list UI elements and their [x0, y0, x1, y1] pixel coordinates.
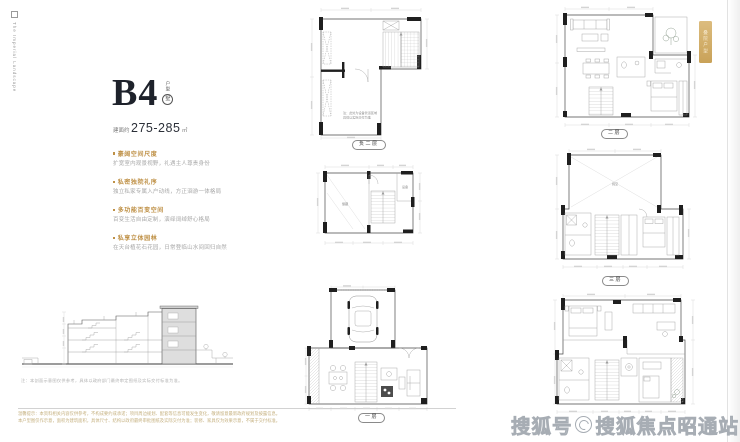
page: The Imperial Landscape B4 户型 墅 建面约 275-2… [0, 0, 740, 442]
floor-plan-level3: 挑空 [551, 147, 693, 275]
badge-text: 叠院户型 [703, 30, 709, 54]
floor-plan-level2 [551, 5, 699, 129]
closet-dashed [323, 32, 331, 116]
plan-label-level2: 二层 [601, 129, 628, 139]
corner-badge: 叠院户型 [699, 21, 712, 63]
area-value: 275-285 [131, 121, 180, 135]
dining-set [329, 365, 347, 390]
plan-note: 注：此处为设备管道区域 [343, 110, 377, 115]
floor-plan-level4 [549, 292, 697, 418]
kitchen [381, 368, 397, 397]
stairs [595, 360, 619, 400]
bed [565, 306, 601, 336]
building-section-drawing [20, 288, 235, 374]
brand-mark: The Imperial Landscape [11, 11, 18, 92]
feature-desc: 在天台植花石花园，日常登临山水间回归自然 [113, 245, 265, 252]
bathroom [565, 213, 591, 255]
unit-title: B4 户型 墅 [112, 74, 173, 112]
feature-desc: 扩宽室内观景视野，礼遇主人尊贵身份 [113, 161, 265, 168]
floor-plan-basement2: 注：此处为设备管道区域 具体以实际交付为准 [305, 5, 433, 147]
stairs [595, 215, 619, 255]
unit-area: 建面约 275-285 ㎡ [113, 121, 187, 135]
disclaimer-line: 本户型图仅作示意，面积为建筑面积，具体尺寸、结构以政府最终审批图纸及实际交付为准… [18, 418, 454, 425]
feature-item: 私享立体园林 在天台植花石花园，日常登临山水间回归自然 [113, 233, 265, 252]
feature-title: 豪阔空间尺度 [118, 149, 158, 158]
disclaimer-line: 温馨提示：本资料相关内容仅供参考，不构成要约或承诺；项目周边规划、配套等信息可能… [18, 411, 454, 418]
watermark-suffix: 搜狐焦点昭通站 [595, 410, 739, 439]
bathroom [559, 358, 589, 400]
feature-title: 多功能百变空间 [118, 205, 164, 214]
unit-side-label: 户型 [165, 81, 171, 92]
feature-list: 豪阔空间尺度 扩宽室内观景视野，礼遇主人尊贵身份 私密独院礼序 独立私家专属入户… [113, 149, 265, 262]
watermark-prefix: 搜狐号 [511, 410, 573, 439]
unit-seal-icon: 墅 [162, 94, 173, 105]
brand-text: The Imperial Landscape [12, 22, 17, 92]
bed [643, 217, 665, 247]
plan-label-basement2: 负二层 [352, 140, 386, 150]
stairs [355, 362, 377, 402]
stairs [589, 87, 613, 115]
brand-logo-icon [11, 11, 18, 18]
feature-title: 私享立体园林 [118, 233, 158, 242]
feature-desc: 独立私家专属入户动线，方正洄游一体格局 [113, 189, 265, 196]
wardrobe [633, 304, 675, 313]
kitchen [655, 59, 687, 73]
plan-label-ground: 一层 [358, 413, 385, 423]
bullet-marker [113, 209, 115, 211]
bullet-marker [113, 181, 115, 183]
feature-item: 豪阔空间尺度 扩宽室内观景视野，礼遇主人尊贵身份 [113, 149, 265, 168]
feature-item: 私密独院礼序 独立私家专属入户动线，方正洄游一体格局 [113, 177, 265, 196]
watermark: 搜狐号 搜狐焦点昭通站 [511, 410, 739, 439]
bathroom [617, 57, 645, 77]
unit-title-side: 户型 墅 [162, 81, 173, 105]
plant-icon [663, 28, 679, 45]
dining-set [583, 59, 609, 78]
feature-title: 私密独院礼序 [118, 177, 158, 186]
feature-item: 多功能百变空间 百变生活自由定制，演绎阔绰舒心格局 [113, 205, 265, 224]
section-caption: 注：本剖面示意图仅供参考，具体以政府部门最终审定图纸及实际交付标准为准。 [21, 378, 183, 384]
sofa [399, 370, 420, 396]
area-unit: ㎡ [182, 126, 188, 134]
room-label: 储藏 [342, 201, 348, 206]
car-icon [348, 296, 379, 342]
plan-label-level3: 三层 [602, 276, 629, 286]
disclaimer: 温馨提示：本资料相关内容仅供参考，不构成要约或承诺；项目周边规划、配套等信息可能… [18, 411, 454, 425]
unit-name: B4 [112, 74, 158, 112]
laundry [621, 358, 637, 376]
bed [647, 81, 677, 111]
living-room [571, 19, 610, 52]
room-label: 挑空 [612, 181, 618, 186]
feature-desc: 百变生活自由定制，演绎阔绰舒心格局 [113, 217, 265, 224]
stairs [383, 32, 419, 67]
bullet-marker [113, 237, 115, 239]
floor-plan-basement1: 储藏 设备 [313, 163, 425, 247]
floor-plan-ground [303, 284, 433, 412]
study-room [639, 358, 671, 402]
area-prefix: 建面约 [113, 126, 130, 134]
stairs [371, 191, 395, 223]
sohu-fox-logo-icon [575, 416, 592, 433]
page-edge [727, 0, 740, 442]
plan-note: 具体以实际交付为准 [343, 115, 371, 120]
bullet-marker [113, 152, 115, 154]
room-label: 设备 [402, 184, 408, 189]
